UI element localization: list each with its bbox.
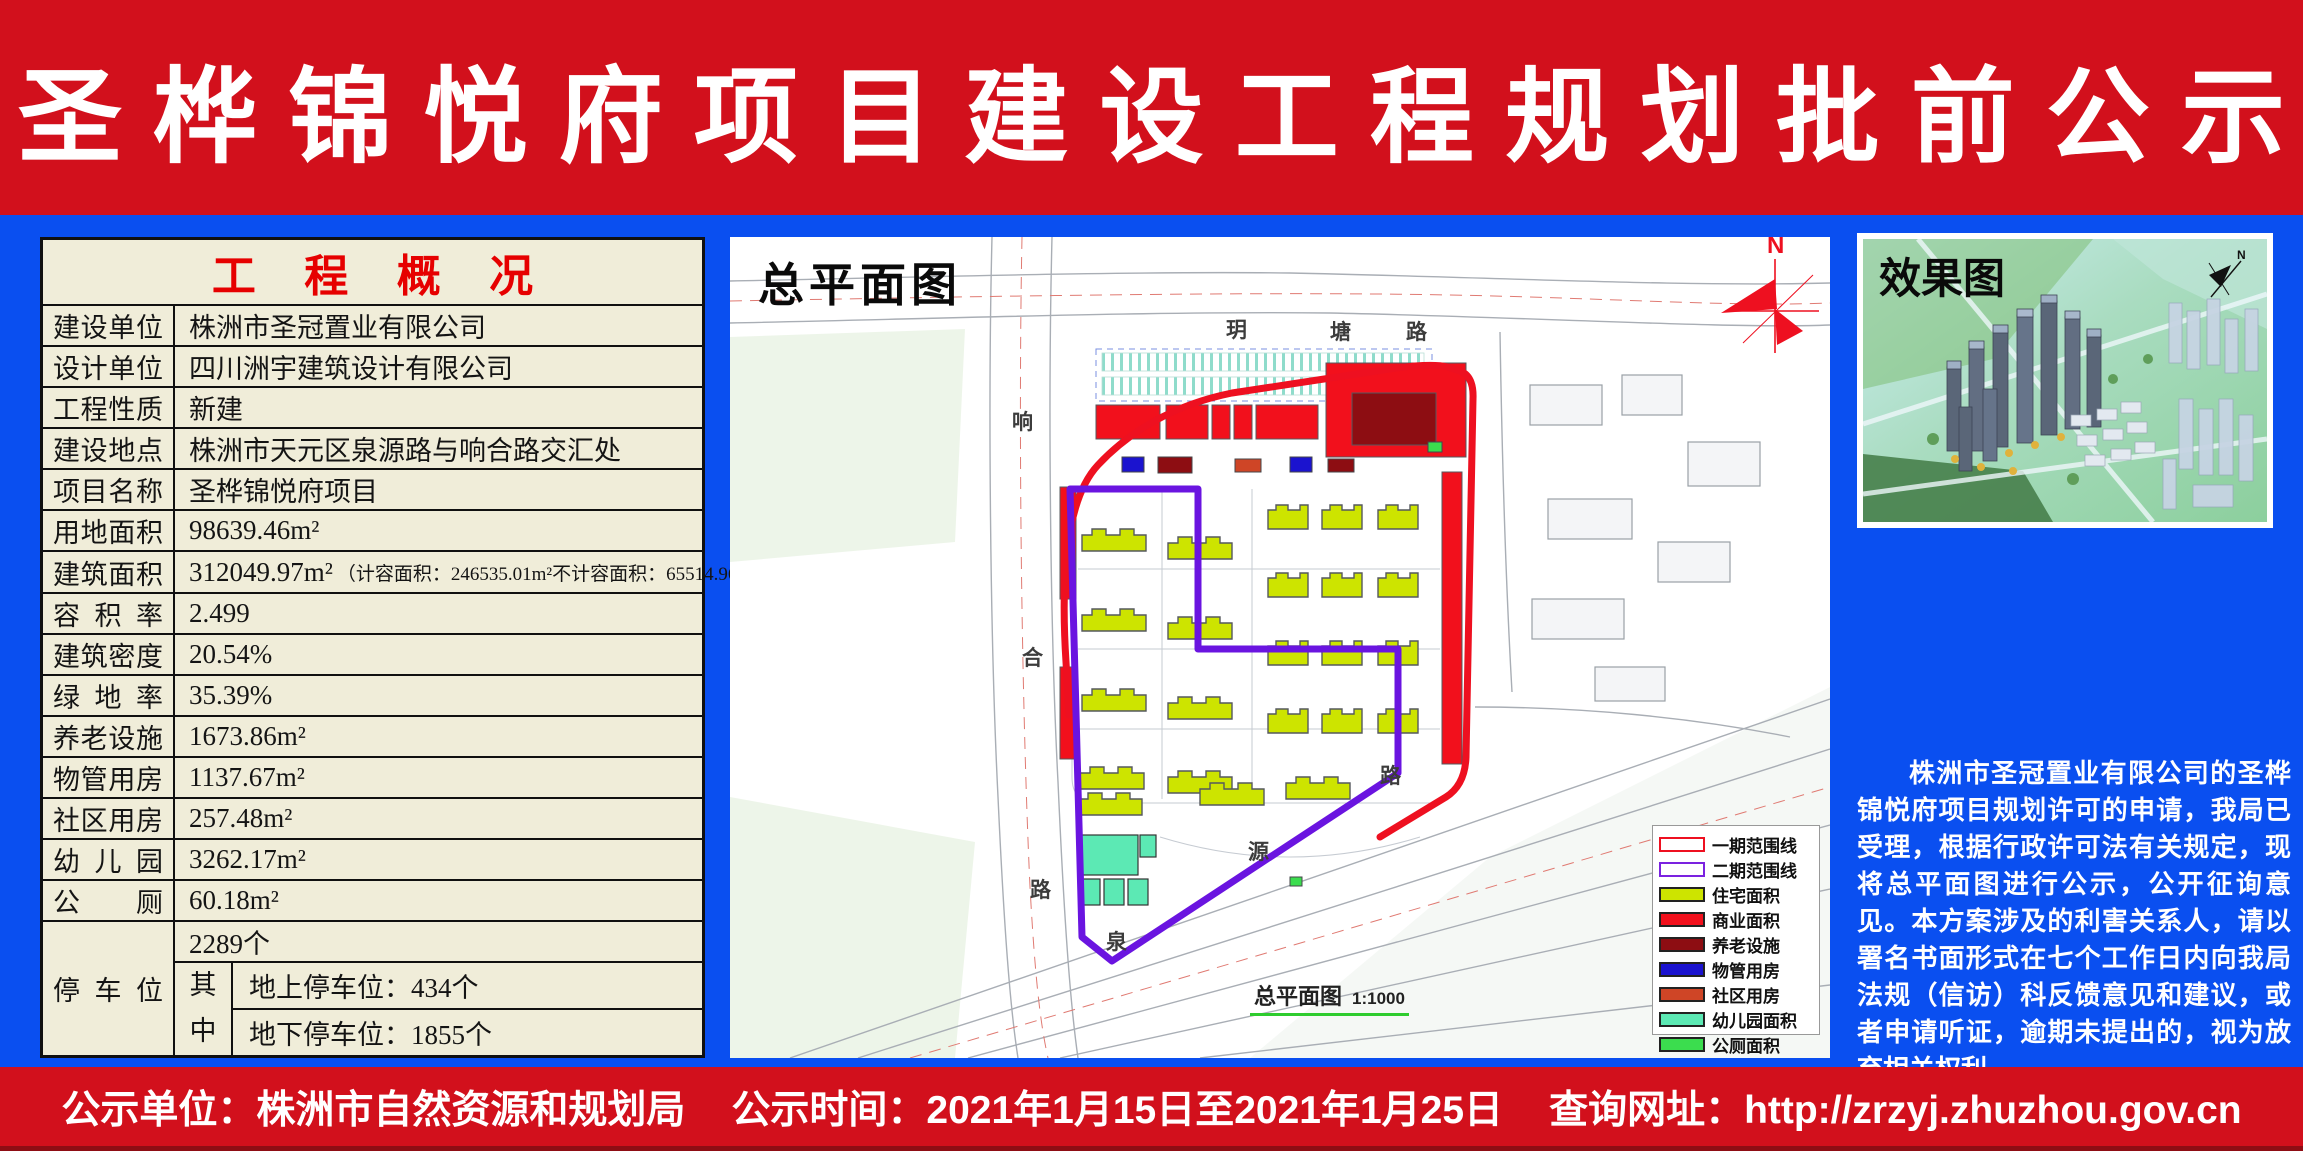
kindergarten-blocks <box>1080 835 1156 905</box>
row-label: 绿地率 <box>53 676 163 715</box>
legend-label: 一期范围线 <box>1712 832 1797 857</box>
parking-sub: 其中 地上停车位：434个 地下停车位：1855个 <box>175 961 702 1055</box>
svg-text:泉: 泉 <box>1106 930 1128 954</box>
legend-swatch-icon <box>1659 962 1705 977</box>
row-label-cell: 项目名称 <box>43 470 175 509</box>
residential-buildings <box>1078 505 1418 815</box>
poster-title: 圣桦锦悦府项目建设工程规划批前公示 <box>18 32 2303 183</box>
legend-swatch-icon <box>1659 1012 1705 1027</box>
row-label-cell: 幼儿园 <box>43 840 175 879</box>
row-label: 建设单位 <box>53 306 163 345</box>
row-value: 1137.67m² <box>175 758 702 797</box>
row-value: 35.39% <box>175 676 702 715</box>
table-row: 容积率2.499 <box>43 592 702 633</box>
legend-item: 养老设施 <box>1659 932 1813 957</box>
table-row: 建设地点株洲市天元区泉源路与响合路交汇处 <box>43 427 702 468</box>
row-label: 建筑密度 <box>53 635 163 674</box>
parking-row: 停车位 2289个 其中 地上停车位：434个 地下停车位：1855个 <box>43 920 702 1055</box>
table-row: 设计单位四川洲宇建筑设计有限公司 <box>43 345 702 386</box>
row-label-cell: 公厕 <box>43 881 175 920</box>
table-title: 工程概况 <box>43 240 750 304</box>
row-label: 建设地点 <box>53 429 163 468</box>
svg-text:N: N <box>2237 248 2246 262</box>
render-image: N 效果图 <box>1857 233 2273 528</box>
parking-label: 停车位 <box>53 969 163 1008</box>
row-label-cell: 建筑面积 <box>43 552 175 591</box>
parking-sublabel: 其中 <box>188 963 218 1055</box>
site-plan-panel: 玥 塘 路 响 合 路 泉 源 路 N 总平面图 一期范围线二期范围线住宅面积商… <box>730 237 1830 1058</box>
row-value: 圣桦锦悦府项目 <box>175 470 702 509</box>
footer-time: 公示时间：2021年1月15日至2021年1月25日 <box>731 1079 1503 1135</box>
footer-bar: 公示单位：株洲市自然资源和规划局 公示时间：2021年1月15日至2021年1月… <box>0 1067 2303 1151</box>
svg-text:路: 路 <box>1030 878 1052 902</box>
parking-detail: 2289个 其中 地上停车位：434个 地下停车位：1855个 <box>175 922 702 1055</box>
row-value: 257.48m² <box>175 799 702 838</box>
svg-text:N: N <box>1767 237 1784 259</box>
render-title: 效果图 <box>1879 245 2005 306</box>
table-row: 幼儿园3262.17m² <box>43 838 702 879</box>
legend-label: 商业面积 <box>1712 907 1780 932</box>
table-row: 建设单位株洲市圣冠置业有限公司 <box>43 304 702 345</box>
neighbour-buildings <box>1530 375 1760 701</box>
svg-text:路: 路 <box>1380 764 1402 788</box>
svg-text:路: 路 <box>1406 320 1428 344</box>
legend-label: 社区用房 <box>1712 982 1780 1007</box>
row-label-cell: 养老设施 <box>43 717 175 756</box>
north-arrow-icon: N <box>1721 237 1819 353</box>
notice-text: 株洲市圣冠置业有限公司的圣桦锦悦府项目规划许可的申请，我局已受理，根据行政许可法… <box>1857 755 2291 1088</box>
legend-item: 一期范围线 <box>1659 832 1813 857</box>
table-row: 项目名称圣桦锦悦府项目 <box>43 468 702 509</box>
table-row: 社区用房257.48m² <box>43 797 702 838</box>
legend-swatch-icon <box>1659 912 1705 927</box>
legend-item: 社区用房 <box>1659 982 1813 1007</box>
footer-url: 查询网址：http://zrzyj.zhuzhou.gov.cn <box>1549 1079 2242 1135</box>
legend-label: 公厕面积 <box>1712 1032 1780 1057</box>
legend-item: 公厕面积 <box>1659 1032 1813 1057</box>
table-row: 养老设施1673.86m² <box>43 715 702 756</box>
row-label: 项目名称 <box>53 470 163 509</box>
row-label: 设计单位 <box>53 347 163 386</box>
row-value: 312049.97m²（计容面积：246535.01m²不计容面积：65514.… <box>175 552 777 591</box>
row-value-note: （计容面积：246535.01m²不计容面积：65514.96m²） <box>337 559 777 586</box>
row-value: 2.499 <box>175 594 702 633</box>
scale-label: 总平面图1:1000 <box>1250 979 1409 1016</box>
row-value: 新建 <box>175 388 702 427</box>
row-label-cell: 设计单位 <box>43 347 175 386</box>
row-value: 98639.46m² <box>175 511 702 550</box>
table-row: 工程性质新建 <box>43 386 702 427</box>
row-value: 1673.86m² <box>175 717 702 756</box>
row-label-cell: 社区用房 <box>43 799 175 838</box>
row-label: 公厕 <box>53 881 163 920</box>
row-label-cell: 物管用房 <box>43 758 175 797</box>
row-label-cell: 建设地点 <box>43 429 175 468</box>
parking-values: 地上停车位：434个 地下停车位：1855个 <box>233 963 702 1055</box>
row-value: 20.54% <box>175 635 702 674</box>
row-label: 社区用房 <box>53 799 163 838</box>
table-row: 用地面积98639.46m² <box>43 509 702 550</box>
row-label: 养老设施 <box>53 717 163 756</box>
svg-text:合: 合 <box>1022 646 1044 670</box>
legend-swatch-icon <box>1659 887 1705 902</box>
table-row: 物管用房1137.67m² <box>43 756 702 797</box>
table-row: 建筑密度20.54% <box>43 633 702 674</box>
legend-swatch-icon <box>1659 987 1705 1002</box>
legend-label: 幼儿园面积 <box>1712 1007 1797 1032</box>
row-value: 四川洲宇建筑设计有限公司 <box>175 347 702 386</box>
site-plan-title: 总平面图 <box>758 249 962 315</box>
legend-item: 商业面积 <box>1659 907 1813 932</box>
table-row: 建筑面积312049.97m²（计容面积：246535.01m²不计容面积：65… <box>43 550 702 591</box>
footer-unit: 公示单位：株洲市自然资源和规划局 <box>61 1079 685 1135</box>
legend-item: 物管用房 <box>1659 957 1813 982</box>
parking-total: 2289个 <box>175 922 702 961</box>
parking-above-ground: 地上停车位：434个 <box>233 963 702 1008</box>
row-label-cell: 用地面积 <box>43 511 175 550</box>
row-label-cell: 容积率 <box>43 594 175 633</box>
row-value: 株洲市天元区泉源路与响合路交汇处 <box>175 429 702 468</box>
parking-label-cell: 停车位 <box>43 922 175 1055</box>
legend-swatch-icon <box>1659 862 1705 877</box>
legend-swatch-icon <box>1659 937 1705 952</box>
row-value: 3262.17m² <box>175 840 702 879</box>
title-banner: 圣桦锦悦府项目建设工程规划批前公示 <box>0 0 2303 215</box>
row-value: 60.18m² <box>175 881 702 920</box>
row-label: 幼儿园 <box>53 840 163 879</box>
svg-text:源: 源 <box>1248 841 1269 864</box>
legend-label: 二期范围线 <box>1712 857 1797 882</box>
svg-text:玥: 玥 <box>1226 319 1247 342</box>
row-label: 容积率 <box>53 594 163 633</box>
row-label-cell: 建设单位 <box>43 306 175 345</box>
row-value: 株洲市圣冠置业有限公司 <box>175 306 702 345</box>
legend-swatch-icon <box>1659 1037 1705 1052</box>
legend-label: 养老设施 <box>1712 932 1780 957</box>
svg-text:响: 响 <box>1012 410 1033 434</box>
row-label-cell: 建筑密度 <box>43 635 175 674</box>
row-label: 物管用房 <box>53 758 163 797</box>
legend-label: 住宅面积 <box>1712 882 1780 907</box>
legend-swatch-icon <box>1659 837 1705 852</box>
legend: 一期范围线二期范围线住宅面积商业面积养老设施物管用房社区用房幼儿园面积公厕面积 <box>1652 825 1820 1035</box>
announcement-panel: N 效果图 株洲市圣冠置业有限公司的圣桦锦悦府项目规划许可的申请，我局已受理，根… <box>1830 215 2303 1067</box>
legend-item: 幼儿园面积 <box>1659 1007 1813 1032</box>
table-row: 公厕60.18m² <box>43 879 702 920</box>
row-label-cell: 绿地率 <box>43 676 175 715</box>
svg-text:塘: 塘 <box>1330 320 1351 344</box>
row-label: 工程性质 <box>53 388 163 427</box>
project-overview-table: 工程概况 建设单位株洲市圣冠置业有限公司设计单位四川洲宇建筑设计有限公司工程性质… <box>40 237 705 1058</box>
legend-item: 住宅面积 <box>1659 882 1813 907</box>
planning-notice-poster: 圣桦锦悦府项目建设工程规划批前公示 工程概况 建设单位株洲市圣冠置业有限公司设计… <box>0 0 2303 1151</box>
legend-label: 物管用房 <box>1712 957 1780 982</box>
parking-sublabel-cell: 其中 <box>175 963 233 1055</box>
row-label: 建筑面积 <box>53 553 163 592</box>
row-label-cell: 工程性质 <box>43 388 175 427</box>
parking-below-ground: 地下停车位：1855个 <box>233 1008 702 1055</box>
table-row: 绿地率35.39% <box>43 674 702 715</box>
row-label: 用地面积 <box>53 511 163 550</box>
legend-item: 二期范围线 <box>1659 857 1813 882</box>
